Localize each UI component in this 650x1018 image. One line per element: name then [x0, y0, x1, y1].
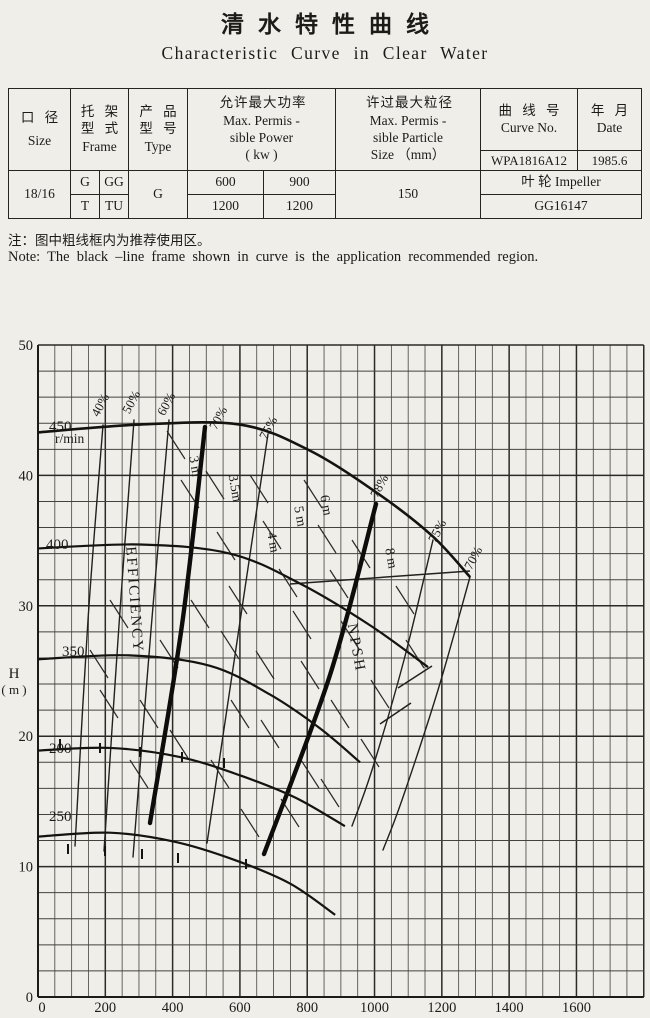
svg-text:60%: 60% — [154, 390, 179, 418]
axis-labels: 0102030405002004006008001000120014001600 — [19, 338, 591, 1016]
svg-text:( m ): ( m ) — [1, 682, 26, 697]
svg-text:5 m: 5 m — [291, 505, 309, 528]
svg-text:1400: 1400 — [495, 1000, 524, 1016]
svg-text:40: 40 — [19, 468, 34, 484]
svg-text:30: 30 — [19, 599, 34, 615]
svg-text:350: 350 — [62, 644, 85, 660]
svg-text:r/min: r/min — [55, 431, 84, 446]
svg-text:40%: 40% — [88, 391, 113, 419]
svg-text:70%: 70% — [206, 404, 231, 432]
npsh-labels: 3 m3.5m4 m5 m6 m8 m — [186, 455, 400, 570]
svg-text:200: 200 — [94, 1000, 116, 1016]
svg-text:600: 600 — [229, 1000, 251, 1016]
svg-text:3.5m: 3.5m — [226, 473, 246, 503]
svg-text:400: 400 — [162, 1000, 184, 1016]
svg-text:6 m: 6 m — [317, 494, 335, 517]
svg-text:0: 0 — [38, 1000, 45, 1016]
svg-text:400: 400 — [46, 537, 69, 553]
svg-text:NPSH: NPSH — [344, 622, 369, 674]
svg-text:20: 20 — [19, 729, 34, 745]
svg-text:0: 0 — [26, 990, 33, 1006]
svg-text:250: 250 — [49, 809, 72, 825]
grid — [38, 345, 644, 997]
svg-text:1000: 1000 — [360, 1000, 389, 1016]
svg-text:800: 800 — [296, 1000, 318, 1016]
svg-text:50: 50 — [19, 338, 34, 354]
svg-text:1600: 1600 — [562, 1000, 591, 1016]
svg-text:70%: 70% — [461, 544, 486, 572]
svg-text:EFFICIENCY: EFFICIENCY — [122, 546, 145, 654]
pump-curve-sheet: 清水特性曲线 Characteristic Curve in Clear Wat… — [0, 0, 650, 1018]
svg-text:1200: 1200 — [427, 1000, 456, 1016]
svg-text:8 m: 8 m — [382, 547, 400, 570]
svg-text:10: 10 — [19, 860, 34, 876]
svg-text:4 m: 4 m — [264, 531, 282, 554]
svg-text:H: H — [9, 666, 20, 682]
characteristic-curve-chart: 0102030405002004006008001000120014001600… — [0, 0, 650, 1018]
